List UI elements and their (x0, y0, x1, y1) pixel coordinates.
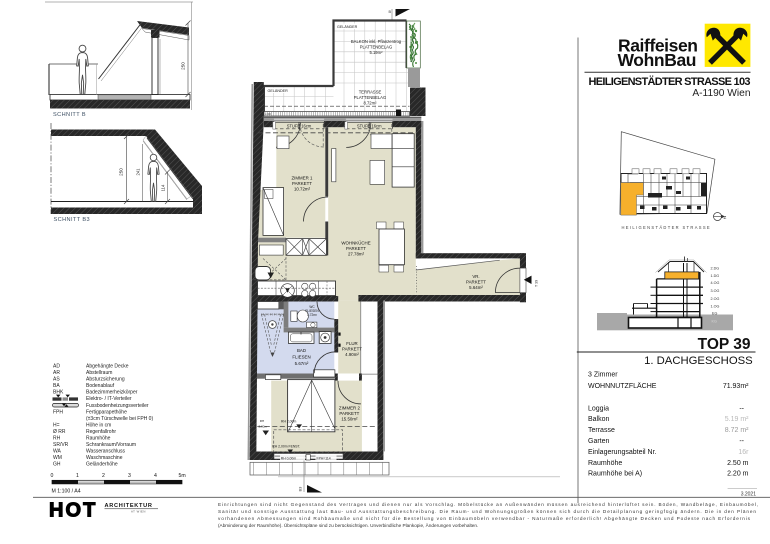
svg-text:RH 0,00m: RH 0,00m (281, 457, 296, 461)
svg-text:Raumhöhe: Raumhöhe (86, 436, 111, 442)
svg-text:Regenfallrohr: Regenfallrohr (86, 429, 116, 435)
svg-text:5m: 5m (179, 473, 186, 479)
svg-text:15.50m²: 15.50m² (341, 416, 358, 421)
svg-text:241: 241 (136, 168, 141, 176)
svg-text:FPH: FPH (53, 409, 63, 415)
svg-text:RH 2,00m FENST.: RH 2,00m FENST. (272, 445, 300, 449)
svg-text:1: 1 (76, 473, 79, 479)
svg-text:WA: WA (53, 449, 62, 455)
svg-text:5.19 m²: 5.19 m² (725, 416, 749, 423)
svg-text:AT WIEN: AT WIEN (131, 509, 146, 513)
svg-text:L=16: L=16 (265, 112, 271, 116)
svg-text:Bodenablauf: Bodenablauf (86, 383, 115, 389)
svg-text:16r: 16r (738, 449, 749, 456)
svg-text:Ø RR: Ø RR (53, 429, 66, 435)
svg-text:B3: B3 (298, 486, 303, 492)
svg-text:HEILIGENSTÄDTER STRASSE 103: HEILIGENSTÄDTER STRASSE 103 (589, 75, 751, 88)
svg-text:3 Zimmer: 3 Zimmer (588, 372, 618, 379)
svg-text:3.2021: 3.2021 (741, 492, 757, 498)
svg-text:2.OG: 2.OG (711, 297, 720, 301)
svg-text:--: -- (739, 405, 744, 412)
svg-text:Raumhöhe: Raumhöhe (588, 460, 622, 467)
svg-text:WOHNKÜCHE: WOHNKÜCHE (341, 241, 370, 246)
svg-text:GH: GH (53, 462, 61, 468)
svg-text:Z: Z (724, 215, 727, 220)
svg-text:GELÄNDER: GELÄNDER (337, 25, 358, 29)
svg-text:BA: BA (53, 383, 60, 389)
svg-text:(Abminderung der Raumhöhe). Üb: (Abminderung der Raumhöhe). Übersichtspl… (218, 522, 478, 528)
svg-text:KG: KG (712, 320, 717, 324)
svg-text:Sanitär und sonstige Ausstattu: Sanitär und sonstige Ausstattung laut Ba… (218, 509, 756, 514)
svg-text:VR.: VR. (472, 274, 479, 279)
svg-text:AS: AS (53, 377, 60, 383)
svg-text:RH: RH (53, 436, 61, 442)
svg-text:WM: WM (53, 455, 62, 461)
svg-text:BAD: BAD (297, 348, 306, 353)
svg-text:Fussbodenheizungsverteiler: Fussbodenheizungsverteiler (86, 403, 149, 409)
svg-text:250: 250 (181, 62, 186, 70)
svg-text:HEILIGENSTÄDTER STRASSE: HEILIGENSTÄDTER STRASSE (622, 225, 712, 230)
svg-text:4: 4 (154, 473, 157, 479)
svg-text:3.OG: 3.OG (711, 289, 720, 293)
svg-text:(±3cm Türschwelle bei FPH 0): (±3cm Türschwelle bei FPH 0) (86, 416, 153, 422)
svg-text:Fertigparapethöhe: Fertigparapethöhe (86, 409, 127, 415)
svg-text:Absturzsicherung: Absturzsicherung (86, 377, 125, 383)
svg-text:STUFE 16cm: STUFE 16cm (287, 124, 312, 129)
svg-text:RH 2,00m: RH 2,00m (281, 419, 296, 423)
svg-text:SR/VR: SR/VR (53, 442, 69, 448)
svg-text:1.72m²: 1.72m² (307, 313, 317, 317)
svg-text:8.72 m²: 8.72 m² (725, 427, 749, 434)
svg-text:5.64m²: 5.64m² (469, 285, 483, 290)
svg-text:4.90m²: 4.90m² (345, 352, 359, 357)
svg-text:TERRASSE: TERRASSE (359, 90, 382, 95)
svg-text:TOP 39: TOP 39 (698, 336, 751, 353)
svg-text:T 39: T 39 (535, 280, 539, 287)
svg-text:WOHNNUTZFLÄCHE: WOHNNUTZFLÄCHE (588, 382, 657, 390)
svg-text:PARKETT: PARKETT (346, 246, 366, 251)
svg-text:AD: AD (53, 364, 60, 370)
svg-text:FLIESEN: FLIESEN (292, 355, 310, 360)
svg-text:Einlagerungsabteil Nr.: Einlagerungsabteil Nr. (588, 449, 657, 456)
svg-text:SCHNITT B: SCHNITT B (53, 112, 86, 118)
svg-text:HOT: HOT (49, 500, 97, 522)
svg-text:5.19m²: 5.19m² (369, 50, 383, 55)
svg-text:--: -- (739, 438, 744, 445)
svg-text:PFLANZENTROG: PFLANZENTROG (409, 37, 413, 62)
svg-text:27.78m²: 27.78m² (348, 252, 365, 257)
svg-text:Wasseranschluss: Wasseranschluss (86, 449, 125, 455)
svg-text:1.OG: 1.OG (711, 305, 720, 309)
svg-text:Einrichtungen sind nicht Gegen: Einrichtungen sind nicht Gegenstand des … (218, 502, 758, 507)
svg-text:1.DG: 1.DG (711, 274, 720, 278)
svg-text:SCHNITT B3: SCHNITT B3 (54, 217, 91, 223)
svg-text:114: 114 (161, 184, 166, 191)
svg-text:M 1:100 / A4: M 1:100 / A4 (52, 489, 81, 495)
svg-text:250: 250 (119, 168, 124, 176)
svg-text:ZIMMER 1: ZIMMER 1 (292, 176, 314, 181)
svg-text:ARCHITEKTUR: ARCHITEKTUR (105, 503, 153, 509)
svg-text:2,00m: 2,00m (259, 425, 268, 429)
svg-text:FPH=114: FPH=114 (317, 457, 331, 461)
svg-text:PARKETT: PARKETT (466, 280, 486, 285)
svg-text:Elektro- / IT-Verteiler: Elektro- / IT-Verteiler (86, 396, 132, 402)
svg-text:PARKETT: PARKETT (342, 347, 362, 352)
svg-text:B: B (388, 10, 391, 14)
svg-text:Balkon: Balkon (588, 416, 610, 423)
svg-text:Geländerhöhe: Geländerhöhe (86, 462, 118, 468)
svg-text:RH: RH (260, 419, 264, 423)
svg-text:Waschmaschine: Waschmaschine (86, 455, 123, 461)
svg-text:2.20 m: 2.20 m (727, 471, 749, 478)
svg-text:Loggia: Loggia (588, 405, 609, 412)
svg-text:Terrasse: Terrasse (588, 427, 615, 434)
svg-text:Abstellraum: Abstellraum (86, 370, 112, 376)
svg-text:1. DACHGESCHOSS: 1. DACHGESCHOSS (644, 355, 753, 367)
svg-text:0: 0 (51, 473, 54, 479)
svg-text:A-1190 Wien: A-1190 Wien (692, 88, 750, 99)
svg-text:GELÄNDER: GELÄNDER (268, 89, 289, 93)
svg-text:Garten: Garten (588, 438, 610, 445)
svg-text:WohnBau: WohnBau (618, 50, 697, 70)
svg-text:Abgehängte Decke: Abgehängte Decke (86, 364, 129, 370)
svg-text:8.72m²: 8.72m² (363, 101, 377, 106)
svg-text:Schrankraum/Vorraum: Schrankraum/Vorraum (86, 442, 136, 448)
svg-text:PARKETT: PARKETT (339, 411, 359, 416)
svg-text:Badezimmerheizkörper: Badezimmerheizkörper (86, 390, 138, 396)
svg-text:Höhe in cm: Höhe in cm (86, 422, 111, 428)
svg-text:PLATTENBELAG: PLATTENBELAG (354, 95, 387, 100)
svg-text:71.93m²: 71.93m² (723, 383, 749, 390)
svg-text:4.OG: 4.OG (711, 281, 720, 285)
svg-text:AR: AR (53, 370, 60, 376)
svg-text:PLATTENBELAG: PLATTENBELAG (360, 45, 393, 50)
svg-text:2.50 m: 2.50 m (727, 460, 749, 467)
svg-text:BALKON inkl. Pflanzentrog: BALKON inkl. Pflanzentrog (351, 39, 402, 44)
svg-text:EG: EG (712, 312, 717, 316)
svg-text:vorhandenen Abmessungen sind R: vorhandenen Abmessungen sind Rohbaumaße … (218, 516, 751, 521)
svg-text:PARKETT: PARKETT (292, 181, 312, 186)
svg-text:3: 3 (128, 473, 131, 479)
svg-text:H=: H= (53, 422, 60, 428)
svg-text:2.DG: 2.DG (711, 266, 720, 270)
svg-text:2: 2 (102, 473, 105, 479)
svg-text:5.67m²: 5.67m² (295, 361, 309, 366)
svg-text:STUFE 16cm: STUFE 16cm (357, 124, 382, 129)
svg-text:10.72m²: 10.72m² (294, 187, 311, 192)
svg-text:ZIMMER 2: ZIMMER 2 (339, 405, 361, 410)
svg-text:FLUR: FLUR (346, 341, 357, 346)
svg-text:Raumhöhe bei A): Raumhöhe bei A) (588, 471, 642, 478)
